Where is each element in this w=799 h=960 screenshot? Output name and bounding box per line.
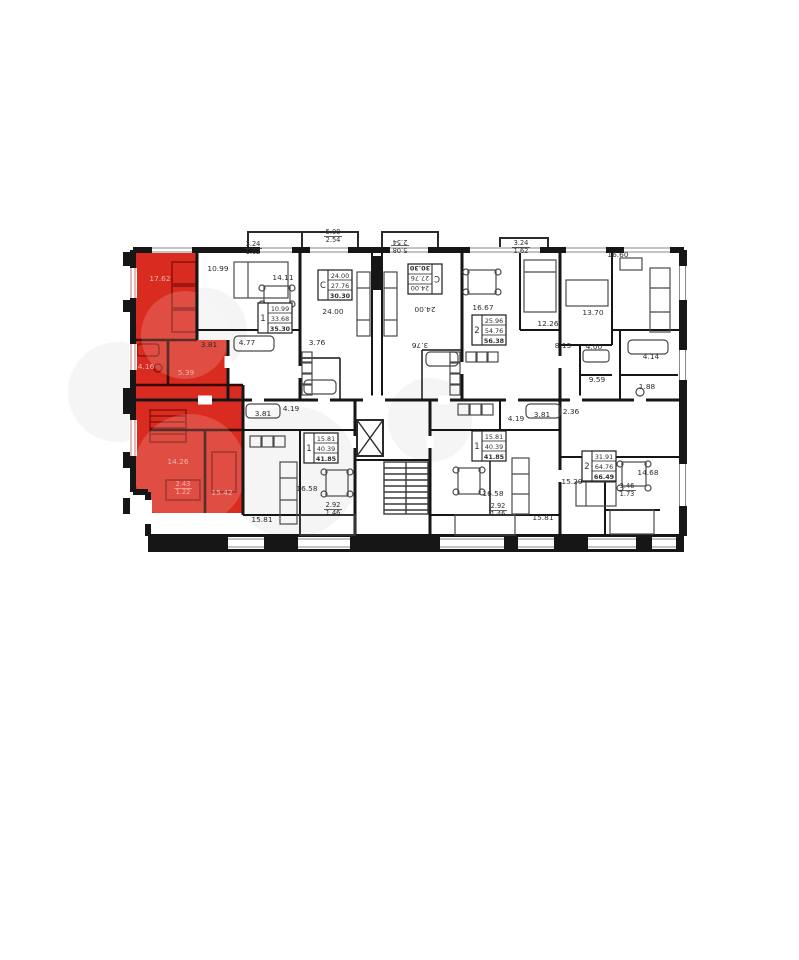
room-area-label: 4.19 [283, 404, 300, 413]
svg-text:27.76: 27.76 [411, 274, 429, 282]
svg-text:16.60: 16.60 [607, 250, 628, 259]
svg-text:15.81: 15.81 [251, 515, 272, 524]
svg-text:4.16: 4.16 [138, 362, 155, 371]
elevator [357, 420, 383, 456]
room-area-label: 15.81 [251, 515, 272, 524]
unit-info-box: С24.0027.7630.30 [318, 270, 352, 300]
svg-text:3.81: 3.81 [201, 340, 218, 349]
svg-text:54.76: 54.76 [485, 327, 503, 335]
balcony-area-label: 5.082.54 [391, 238, 409, 254]
unit-info-box: 115.8140.3941.85 [304, 433, 338, 463]
balcony-area-label: 2.921.46 [489, 502, 507, 518]
room-area-label: 14.26 [167, 457, 188, 466]
room-area-label: 2.36 [563, 407, 580, 416]
svg-text:3.241.62: 3.241.62 [514, 239, 529, 255]
svg-text:3.241.62: 3.241.62 [246, 240, 261, 256]
svg-text:24.00: 24.00 [322, 307, 343, 316]
room-area-label: 3.76 [309, 338, 326, 347]
svg-text:31.91: 31.91 [595, 453, 613, 461]
unit-info-box: 225.9654.7656.38 [472, 315, 506, 345]
svg-text:24.00: 24.00 [331, 272, 349, 280]
svg-text:15.42: 15.42 [211, 488, 232, 497]
svg-text:15.81: 15.81 [532, 513, 553, 522]
room-area-label: 15.42 [211, 488, 232, 497]
svg-text:16.58: 16.58 [296, 484, 317, 493]
room-area-label: 10.99 [207, 264, 228, 273]
svg-text:2.431.22: 2.431.22 [176, 480, 191, 496]
room-area-label: 14.11 [272, 273, 293, 282]
room-area-label: 16.67 [472, 303, 493, 312]
svg-text:40.39: 40.39 [317, 445, 335, 453]
room-area-label: 9.59 [589, 375, 606, 384]
svg-text:5.39: 5.39 [178, 368, 195, 377]
svg-text:40.39: 40.39 [485, 443, 503, 451]
svg-text:4.19: 4.19 [283, 404, 300, 413]
svg-text:15.81: 15.81 [317, 435, 335, 443]
svg-text:3.81: 3.81 [255, 409, 272, 418]
room-area-label: 12.26 [537, 319, 558, 328]
svg-text:2.36: 2.36 [563, 407, 580, 416]
svg-text:41.85: 41.85 [484, 453, 504, 461]
svg-text:1: 1 [306, 444, 311, 454]
unit-info-box: 110.9933.6835.30 [258, 303, 292, 333]
room-area-label: 24.00 [322, 307, 343, 316]
svg-text:24.00: 24.00 [411, 284, 429, 292]
svg-text:12.26: 12.26 [537, 319, 558, 328]
room-area-label: 4.16 [138, 362, 155, 371]
floorplan-screenshot: 3.241.625.082.545.082.543.241.6216.6010.… [0, 0, 799, 960]
svg-text:4.77: 4.77 [239, 338, 256, 347]
svg-text:1.88: 1.88 [639, 382, 656, 391]
room-area-label: 16.58 [482, 489, 503, 498]
svg-text:10.99: 10.99 [207, 264, 228, 273]
room-area-label: 3.81 [255, 409, 272, 418]
room-area-label: 4.77 [239, 338, 256, 347]
room-area-label: 14.68 [637, 468, 658, 477]
balcony-area-label: 2.431.22 [174, 480, 192, 496]
svg-text:25.96: 25.96 [485, 317, 503, 325]
unit-info-box: 231.9164.7666.49 [582, 451, 616, 481]
svg-text:27.76: 27.76 [331, 282, 349, 290]
room-area-label: 15.81 [532, 513, 553, 522]
svg-text:2.921.46: 2.921.46 [326, 501, 341, 517]
svg-text:30.30: 30.30 [330, 292, 351, 300]
svg-text:66.49: 66.49 [594, 473, 615, 481]
svg-text:4.00: 4.00 [586, 342, 603, 351]
svg-text:14.11: 14.11 [272, 273, 293, 282]
svg-text:33.68: 33.68 [271, 315, 289, 323]
balcony-area-label: 5.082.54 [324, 228, 342, 244]
svg-text:41.85: 41.85 [316, 455, 336, 463]
svg-text:64.76: 64.76 [595, 463, 613, 471]
svg-text:1: 1 [260, 314, 265, 324]
svg-text:3.76: 3.76 [411, 341, 428, 350]
stairs [384, 462, 428, 514]
svg-text:5.082.54: 5.082.54 [326, 228, 341, 244]
svg-text:4.14: 4.14 [643, 352, 660, 361]
svg-text:С: С [320, 281, 326, 291]
room-area-label: 5.39 [178, 368, 195, 377]
svg-text:3.76: 3.76 [309, 338, 326, 347]
room-area-label: 4.00 [586, 342, 603, 351]
room-area-label: 3.81 [201, 340, 218, 349]
svg-text:30.30: 30.30 [409, 264, 430, 272]
svg-text:3.461.73: 3.461.73 [620, 482, 635, 498]
balcony-area-label: 3.241.62 [244, 240, 262, 256]
svg-text:35.30: 35.30 [270, 325, 291, 333]
svg-text:24.00: 24.00 [414, 305, 435, 314]
bottom-wall [148, 534, 684, 552]
room-area-label: 3.76 [411, 341, 428, 350]
room-area-label: 16.60 [607, 250, 628, 259]
room-area-label: 17.62 [149, 274, 170, 283]
room-area-label: 8.13 [555, 341, 572, 350]
svg-text:4.19: 4.19 [508, 414, 525, 423]
unit-info-box: С24.0027.7630.30 [408, 264, 442, 294]
room-area-label: 3.81 [534, 410, 551, 419]
svg-text:15.29: 15.29 [561, 477, 582, 486]
room-area-label: 16.58 [296, 484, 317, 493]
svg-text:56.38: 56.38 [484, 337, 505, 345]
svg-text:8.13: 8.13 [555, 341, 572, 350]
svg-text:17.62: 17.62 [149, 274, 170, 283]
svg-text:14.68: 14.68 [637, 468, 658, 477]
balcony-area-label: 3.241.62 [512, 239, 530, 255]
svg-text:14.26: 14.26 [167, 457, 188, 466]
svg-text:13.70: 13.70 [582, 308, 603, 317]
svg-text:16.58: 16.58 [482, 489, 503, 498]
room-area-label: 24.00 [414, 305, 435, 314]
svg-text:2: 2 [474, 326, 479, 336]
svg-text:15.81: 15.81 [485, 433, 503, 441]
balcony-area-label: 2.921.46 [324, 501, 342, 517]
room-area-label: 1.88 [639, 382, 656, 391]
svg-text:5.082.54: 5.082.54 [393, 238, 408, 254]
svg-text:2.921.46: 2.921.46 [491, 502, 506, 518]
room-area-label: 15.29 [561, 477, 582, 486]
floor-plan-svg: 3.241.625.082.545.082.543.241.6216.6010.… [0, 0, 799, 960]
svg-text:1: 1 [474, 442, 479, 452]
unit-info-box: 115.8140.3941.85 [472, 431, 506, 461]
svg-text:2: 2 [584, 462, 589, 472]
room-area-label: 13.70 [582, 308, 603, 317]
svg-text:16.67: 16.67 [472, 303, 493, 312]
balcony-area-label: 3.461.73 [618, 482, 636, 498]
svg-text:9.59: 9.59 [589, 375, 606, 384]
room-area-label: 4.14 [643, 352, 660, 361]
svg-text:С: С [434, 273, 440, 283]
room-area-label: 4.19 [508, 414, 525, 423]
svg-text:3.81: 3.81 [534, 410, 551, 419]
svg-text:10.99: 10.99 [271, 305, 289, 313]
